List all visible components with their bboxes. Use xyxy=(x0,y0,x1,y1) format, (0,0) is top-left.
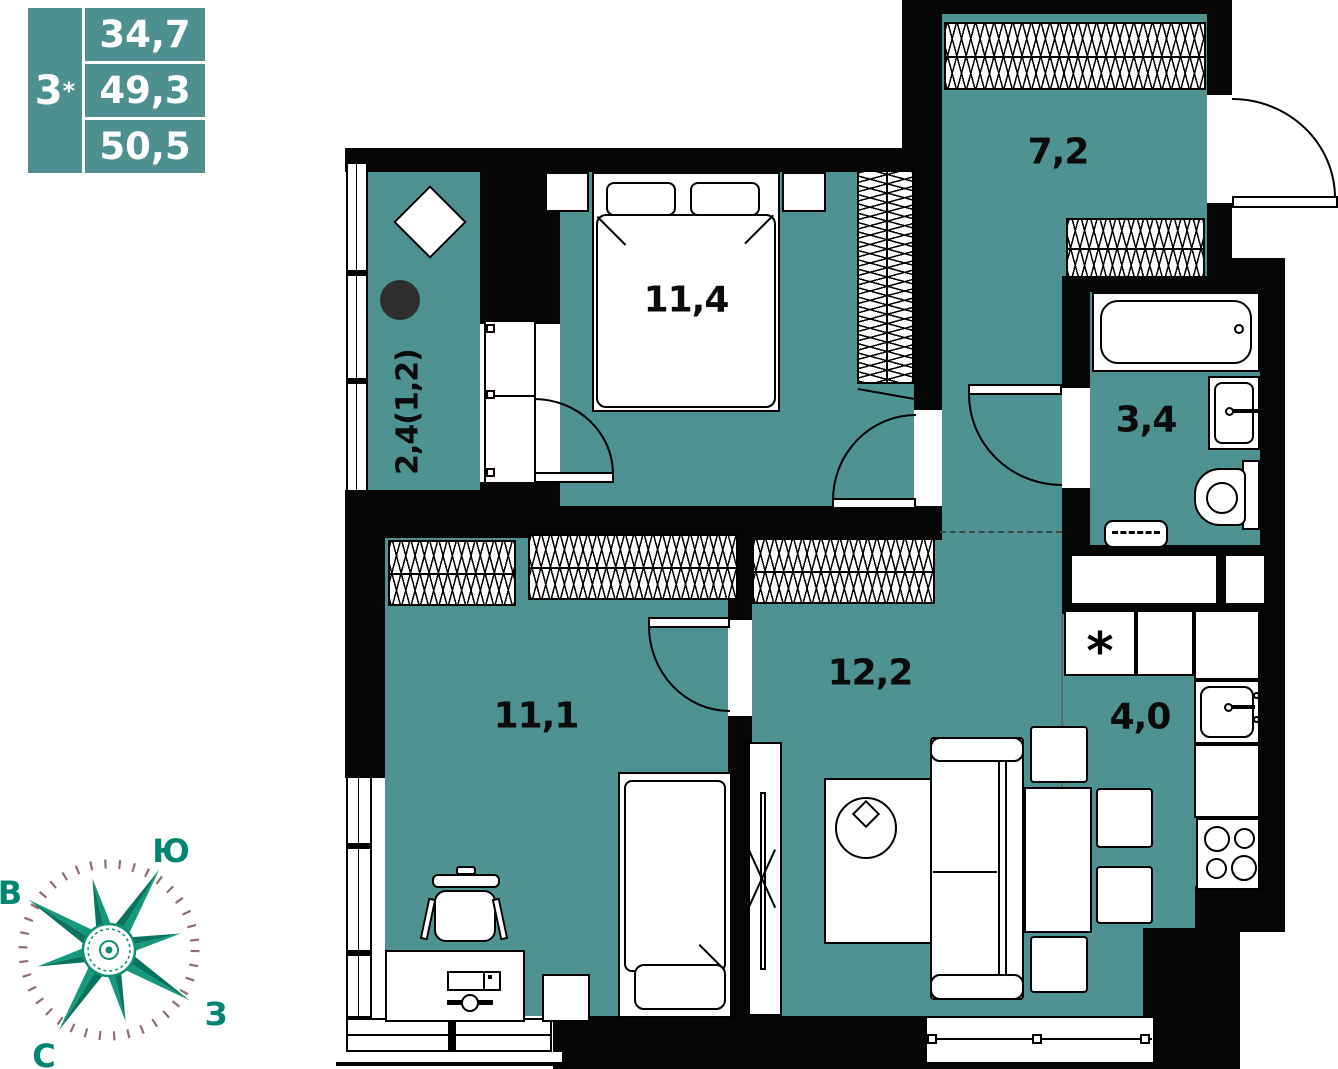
room-label-bedroom-second: 11,1 xyxy=(494,696,579,737)
window-mullion xyxy=(346,378,368,384)
bath-mat xyxy=(1104,520,1168,548)
nightstand xyxy=(545,172,589,212)
dining-chair xyxy=(1096,788,1153,848)
sofa-armrest xyxy=(930,974,1024,1000)
bathtub-drain xyxy=(1234,324,1244,334)
mouse xyxy=(461,994,479,1012)
plant xyxy=(380,280,420,320)
nightstand xyxy=(542,974,590,1022)
window-sill-edge xyxy=(336,1062,562,1066)
dining-table xyxy=(1024,787,1092,933)
laptop xyxy=(447,971,501,991)
dining-chair xyxy=(1096,866,1153,924)
wall xyxy=(345,490,385,778)
sofa-cushion-line xyxy=(933,871,997,873)
duct-shaft xyxy=(1072,556,1216,603)
window-frame-mark xyxy=(486,468,495,477)
faucet-arm xyxy=(1232,409,1258,413)
pillow xyxy=(606,182,676,216)
area-cell-total: 49,3 xyxy=(85,64,205,117)
window-mullion xyxy=(346,950,372,956)
area-cell-overall: 50,5 xyxy=(85,120,205,173)
room-label-bathroom: 3,4 xyxy=(1116,400,1177,441)
desk-chair-back xyxy=(432,874,500,888)
bedroom-second-window-left xyxy=(346,776,372,1018)
compass-label-west: З xyxy=(205,995,228,1033)
sofa-armrest xyxy=(930,737,1024,762)
wardrobe xyxy=(388,540,516,606)
fridge: * xyxy=(1064,610,1136,676)
kitchen-counter xyxy=(1194,744,1260,818)
stove-burner xyxy=(1204,826,1230,852)
bedroom-main-door-gap xyxy=(914,410,942,506)
window-mullion xyxy=(448,1020,456,1050)
kitchen-counter xyxy=(1136,610,1194,676)
entrance-door-arc xyxy=(1232,98,1336,198)
zone-boundary-dashed xyxy=(940,531,1062,533)
sofa xyxy=(930,737,1024,1000)
wall xyxy=(902,0,942,172)
bedroom-second-door-gap xyxy=(728,620,752,716)
window-frame-mark xyxy=(486,390,495,399)
window-glazing xyxy=(358,778,359,1016)
room-label-bedroom-main: 11,4 xyxy=(644,280,729,321)
wardrobe xyxy=(1066,218,1205,278)
bathroom-door-gap xyxy=(1062,388,1090,488)
pillow xyxy=(690,182,760,216)
balcony-door-unit xyxy=(484,320,536,484)
sofa-back-line xyxy=(998,762,1000,974)
window-frame-mark xyxy=(486,324,495,333)
wall xyxy=(902,0,1232,14)
laptop-key xyxy=(488,975,492,979)
compass-label-south: Ю xyxy=(152,832,190,870)
toilet-seat xyxy=(1206,482,1238,514)
bath-mat-line xyxy=(1112,531,1160,534)
laptop-hinge xyxy=(483,973,485,989)
room-label-balcony: 2,4(1,2) xyxy=(391,349,426,475)
stove-burner xyxy=(1231,855,1257,881)
sofa-back-line xyxy=(1005,762,1007,974)
blanket xyxy=(624,780,726,972)
window-glazing xyxy=(356,164,357,490)
pillow xyxy=(634,964,726,1010)
stove-burner xyxy=(1206,858,1227,879)
wardrobe xyxy=(944,22,1206,90)
room-label-kitchen: 4,0 xyxy=(1110,697,1171,738)
faucet-arm xyxy=(1231,705,1255,709)
rooms-count: 3 xyxy=(35,68,63,114)
compass-label-east: В xyxy=(0,874,22,912)
room-label-living: 12,2 xyxy=(828,653,913,694)
desk-chair-seat xyxy=(434,890,496,942)
wall xyxy=(1207,203,1232,263)
window-mullion xyxy=(346,270,368,276)
wardrobe xyxy=(752,538,935,604)
wall xyxy=(345,148,942,172)
room-label-hallway: 7,2 xyxy=(1028,132,1089,173)
bathtub-basin xyxy=(1100,300,1252,364)
entrance-door-gap xyxy=(1207,95,1232,203)
compass-rose xyxy=(0,828,232,1069)
compass-star xyxy=(0,828,232,1069)
window-sill xyxy=(336,1052,562,1062)
wall xyxy=(1195,886,1285,932)
wardrobe xyxy=(528,534,738,600)
window-frame-mark xyxy=(927,1034,937,1044)
balcony-window xyxy=(346,162,368,492)
duct-shaft xyxy=(1226,556,1264,603)
compass-label-north: С xyxy=(32,1037,55,1069)
washbasin-bowl xyxy=(1214,382,1254,444)
dining-chair xyxy=(1030,726,1088,783)
kitchen-sink-basin xyxy=(1200,686,1254,738)
floorplan: 3* 34,7 49,3 50,5 xyxy=(0,0,1338,1069)
wardrobe xyxy=(857,170,914,384)
window-mullion xyxy=(346,843,372,849)
wall xyxy=(1207,0,1232,98)
nightstand xyxy=(782,172,826,212)
wall xyxy=(1062,276,1260,292)
window-frame-mark xyxy=(1140,1034,1150,1044)
sink-knob xyxy=(1253,716,1260,723)
kitchen-counter xyxy=(1194,610,1260,680)
stove-burner xyxy=(1234,828,1255,849)
area-cell-living: 34,7 xyxy=(85,8,205,61)
dining-chair xyxy=(1030,936,1088,993)
window-frame-mark xyxy=(1032,1034,1042,1044)
sink-knob xyxy=(1253,692,1260,699)
area-table: 3* 34,7 49,3 50,5 xyxy=(28,8,205,173)
rooms-count-cell: 3* xyxy=(28,8,82,173)
